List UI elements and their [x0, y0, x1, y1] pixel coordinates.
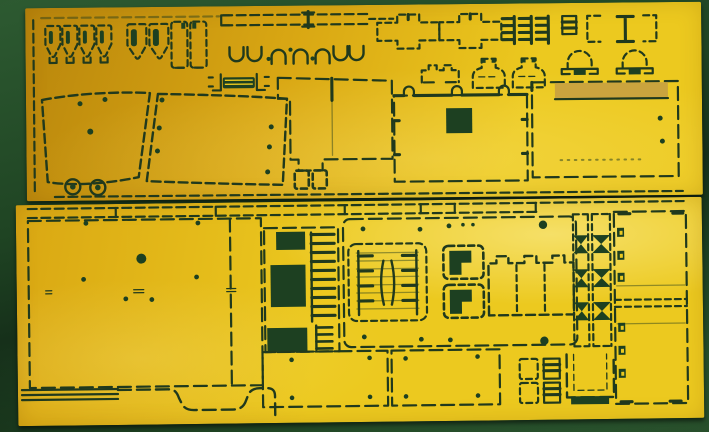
engine-deck-panel — [343, 216, 578, 347]
vision-port-covers — [171, 22, 206, 68]
i-beam-bracket-set — [587, 15, 656, 42]
bottom-fret-etching — [16, 197, 705, 426]
clamp-row — [229, 46, 363, 64]
armored-shield-pair — [127, 24, 168, 59]
hatch-panel — [394, 85, 528, 181]
fender-panel-left — [42, 92, 151, 184]
sheet-bottom-edge-line — [55, 191, 683, 197]
port-frame-pair — [295, 170, 327, 188]
hinge-bar — [209, 74, 269, 91]
radiator-comb-panel — [264, 227, 340, 352]
stowage-strips — [22, 389, 118, 400]
l-port-frames — [443, 245, 484, 317]
top-rail-strips — [28, 201, 684, 218]
cross-bracket-pair — [377, 14, 501, 49]
bell-mount-pair — [473, 58, 545, 88]
hull-floor-panel — [28, 218, 263, 388]
wheel-arch-profile — [118, 388, 275, 417]
stepped-hull-panel — [278, 77, 393, 171]
latch-blocks — [520, 359, 561, 403]
photo-scene: { "scene": { "description": "Photograph … — [0, 0, 709, 432]
top-fret-etching — [25, 2, 703, 201]
photo-etch-sheet-top — [25, 2, 703, 201]
grommet-discs — [65, 179, 105, 195]
track-guard-strips — [573, 214, 612, 346]
u-channel-bracket — [567, 354, 615, 405]
fender-panel-right — [146, 93, 288, 186]
floor-plate-pair — [262, 349, 500, 407]
headlight-guard-set — [45, 25, 111, 63]
side-hull-panel — [614, 211, 688, 404]
skirt-panel — [532, 81, 679, 177]
bumper-bracket — [422, 65, 459, 82]
photo-etch-sheet-bottom — [16, 197, 705, 426]
mushroom-vent-pair — [562, 50, 653, 75]
louver-grille-pair — [348, 243, 427, 321]
battery-box-panel — [488, 255, 574, 315]
small-grille — [562, 16, 576, 34]
intake-grille-combs — [502, 16, 548, 43]
hinge-strip-long — [221, 11, 393, 29]
